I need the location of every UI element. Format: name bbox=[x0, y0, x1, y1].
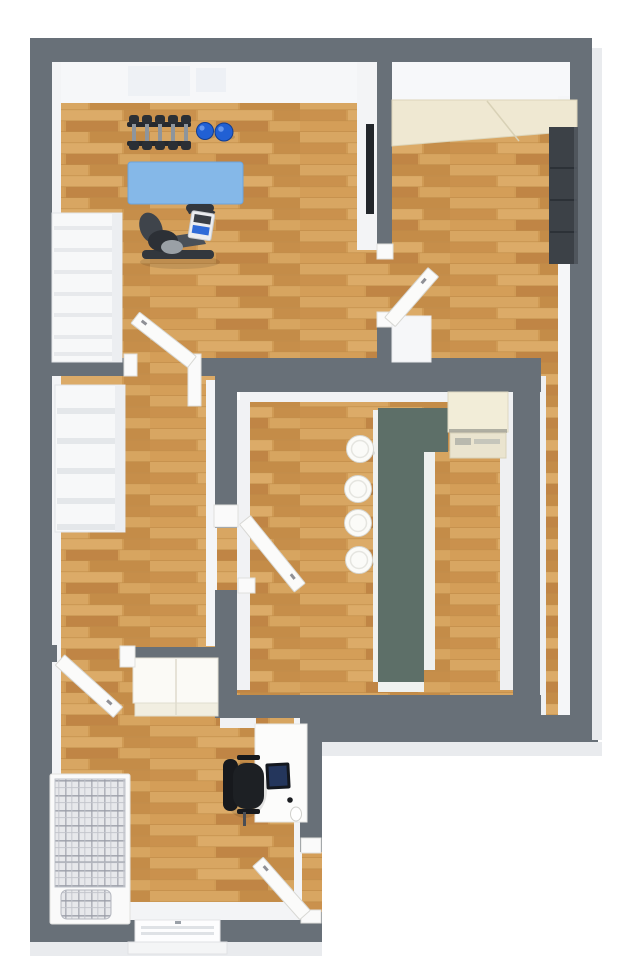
appliance-control-2 bbox=[474, 439, 500, 444]
wall-kitchen-east bbox=[513, 376, 540, 718]
chair-armrest-bottom bbox=[237, 809, 260, 814]
wall-gym-kitchen-band bbox=[192, 358, 541, 376]
mouse bbox=[287, 797, 293, 803]
outer-face-right bbox=[592, 48, 602, 740]
window-handle bbox=[175, 921, 181, 924]
lower-staircase bbox=[55, 385, 125, 532]
appliance-front bbox=[450, 433, 506, 458]
jamb-kitchen-door-bottom bbox=[238, 578, 255, 593]
monitor bbox=[265, 762, 290, 789]
bed-pillow bbox=[61, 890, 111, 919]
counter-arm bbox=[424, 408, 448, 452]
counter-east-face bbox=[424, 452, 435, 670]
wall-bottom-mid bbox=[322, 715, 598, 742]
appliance-door-seam bbox=[449, 429, 507, 433]
wall-kitchen-west-upper bbox=[215, 358, 237, 528]
counter-bar bbox=[378, 408, 424, 682]
kitchen-appliance bbox=[448, 392, 508, 458]
upper-staircase bbox=[52, 213, 122, 362]
medicine-ball-1 bbox=[197, 123, 214, 140]
wall-tv bbox=[366, 124, 374, 214]
floor-plan-svg bbox=[0, 0, 623, 960]
window-sill bbox=[128, 942, 227, 954]
waste-bin bbox=[291, 807, 302, 821]
appliance-control-1 bbox=[455, 438, 471, 445]
gym-wall-window-glow-1 bbox=[128, 66, 190, 96]
bike-console bbox=[188, 211, 215, 241]
bike-pedal-housing bbox=[161, 240, 183, 254]
lower-staircase-base bbox=[55, 385, 125, 532]
wall-left bbox=[30, 38, 52, 942]
outer-face-bottom-mid bbox=[322, 742, 602, 756]
jamb-gym-door-left bbox=[124, 354, 137, 376]
bar-stool-3 bbox=[345, 510, 372, 537]
tall-cabinet bbox=[549, 127, 578, 264]
counter-front-face bbox=[378, 682, 424, 692]
wardrobe bbox=[133, 658, 218, 716]
chair-seat bbox=[233, 763, 264, 809]
exercise-mat bbox=[128, 162, 243, 204]
upper-staircase-base bbox=[52, 213, 122, 362]
window-glass-1 bbox=[141, 926, 214, 929]
wall-bedroom-north-stub bbox=[30, 645, 57, 662]
floor-plan-screenshot bbox=[0, 0, 623, 960]
bed-duvet bbox=[55, 779, 125, 887]
jamb-bedroom-exit-top bbox=[301, 838, 321, 853]
window-glass-2 bbox=[141, 932, 214, 935]
bar-stool-1 bbox=[347, 436, 374, 463]
jamb-topright-door-top bbox=[377, 244, 393, 259]
bar-stool-4 bbox=[346, 547, 373, 574]
topright-north-face bbox=[392, 62, 577, 100]
wall-kitchen-south bbox=[215, 695, 541, 718]
bar-stool-2 bbox=[345, 476, 372, 503]
doorway-floor-gym-topright bbox=[375, 250, 394, 318]
wall-top bbox=[30, 38, 592, 62]
jamb-bedroom-entry bbox=[120, 646, 135, 667]
jamb-kitchen-door-top bbox=[214, 505, 238, 527]
chair-leg bbox=[243, 812, 246, 826]
doorway-floor-kitchen bbox=[215, 528, 240, 590]
medicine-ball-2 bbox=[215, 123, 233, 141]
corridor-west-face bbox=[540, 376, 546, 715]
gym-wall-window-glow-2 bbox=[196, 68, 226, 92]
lower-staircase-stringer bbox=[115, 385, 125, 532]
appliance-top bbox=[448, 392, 508, 432]
tall-cabinet-body bbox=[549, 127, 578, 264]
bed bbox=[50, 774, 130, 924]
wall-divider-upper bbox=[377, 62, 392, 250]
wall-kitchen-north-thick bbox=[217, 376, 541, 392]
bedroom-window bbox=[128, 920, 227, 954]
chair-armrest-top bbox=[237, 755, 260, 760]
kitchen-west-face bbox=[237, 400, 250, 690]
monitor-screen bbox=[268, 766, 287, 787]
upper-staircase-stringer bbox=[112, 213, 122, 362]
